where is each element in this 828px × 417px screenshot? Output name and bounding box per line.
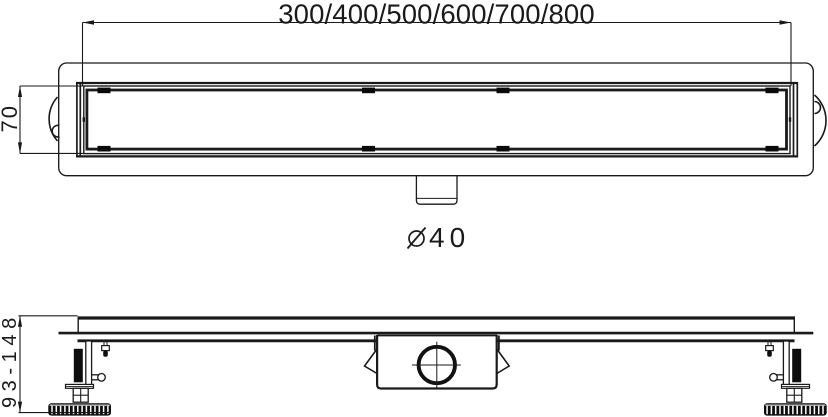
svg-text:70: 70 (0, 104, 22, 132)
svg-text:40: 40 (429, 222, 470, 253)
svg-text:300/400/500/600/700/800: 300/400/500/600/700/800 (278, 0, 595, 30)
svg-text:93-148: 93-148 (0, 312, 21, 408)
